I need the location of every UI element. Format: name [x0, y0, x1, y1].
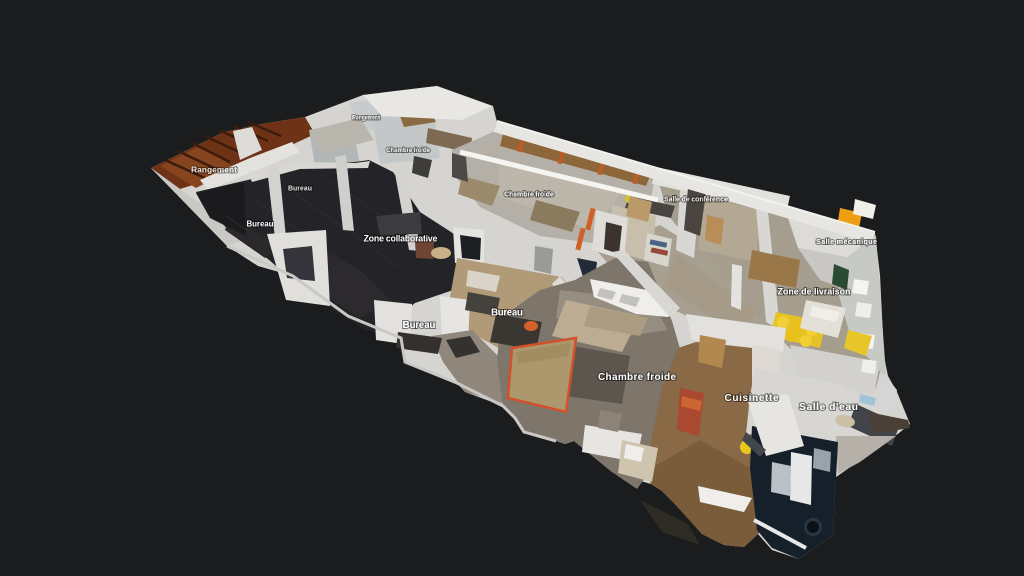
svg-text:Bureau: Bureau [288, 186, 312, 193]
svg-text:Salle d'eau: Salle d'eau [799, 401, 858, 413]
svg-text:Chambre froide: Chambre froide [386, 147, 430, 154]
svg-text:Rangement: Rangement [352, 116, 380, 122]
svg-text:Bureau: Bureau [247, 220, 274, 229]
svg-text:Chambre froide: Chambre froide [504, 190, 554, 199]
svg-text:Zone collaborative: Zone collaborative [364, 234, 438, 244]
svg-text:Bureau: Bureau [403, 320, 436, 331]
svg-text:Chambre froide: Chambre froide [598, 372, 676, 383]
svg-text:Bureau: Bureau [491, 308, 523, 319]
svg-text:Zone de livraison: Zone de livraison [778, 287, 851, 297]
svg-text:Salle de conférence: Salle de conférence [664, 195, 728, 204]
svg-text:Salle mécanique: Salle mécanique [816, 237, 877, 246]
svg-text:Rangement: Rangement [191, 165, 237, 175]
svg-text:Cuisinette: Cuisinette [725, 393, 779, 404]
